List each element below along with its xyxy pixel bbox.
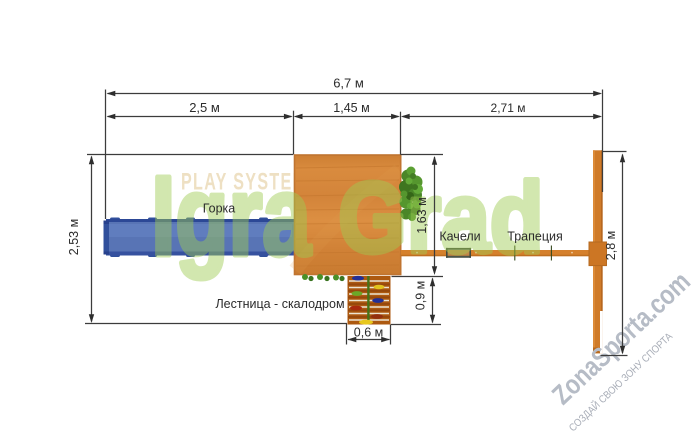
svg-text:Качели: Качели	[439, 230, 480, 244]
svg-text:0,9 м: 0,9 м	[414, 281, 428, 310]
svg-text:0,6 м: 0,6 м	[354, 325, 383, 339]
svg-text:1,45 м: 1,45 м	[333, 101, 369, 115]
svg-text:Grad: Grad	[338, 162, 543, 273]
svg-text:Лестница - скалодром: Лестница - скалодром	[215, 297, 344, 311]
svg-text:2,53 м: 2,53 м	[67, 219, 81, 255]
svg-text:Трапеция: Трапеция	[507, 230, 562, 244]
svg-text:2,71 м: 2,71 м	[491, 101, 526, 115]
svg-text:1,63 м: 1,63 м	[415, 197, 429, 233]
svg-text:6,7 м: 6,7 м	[333, 76, 364, 91]
svg-text:Igra: Igra	[151, 154, 311, 279]
svg-text:2,8 м: 2,8 м	[604, 231, 618, 260]
svg-text:Горка: Горка	[203, 202, 236, 216]
svg-text:2,5 м: 2,5 м	[189, 100, 220, 115]
